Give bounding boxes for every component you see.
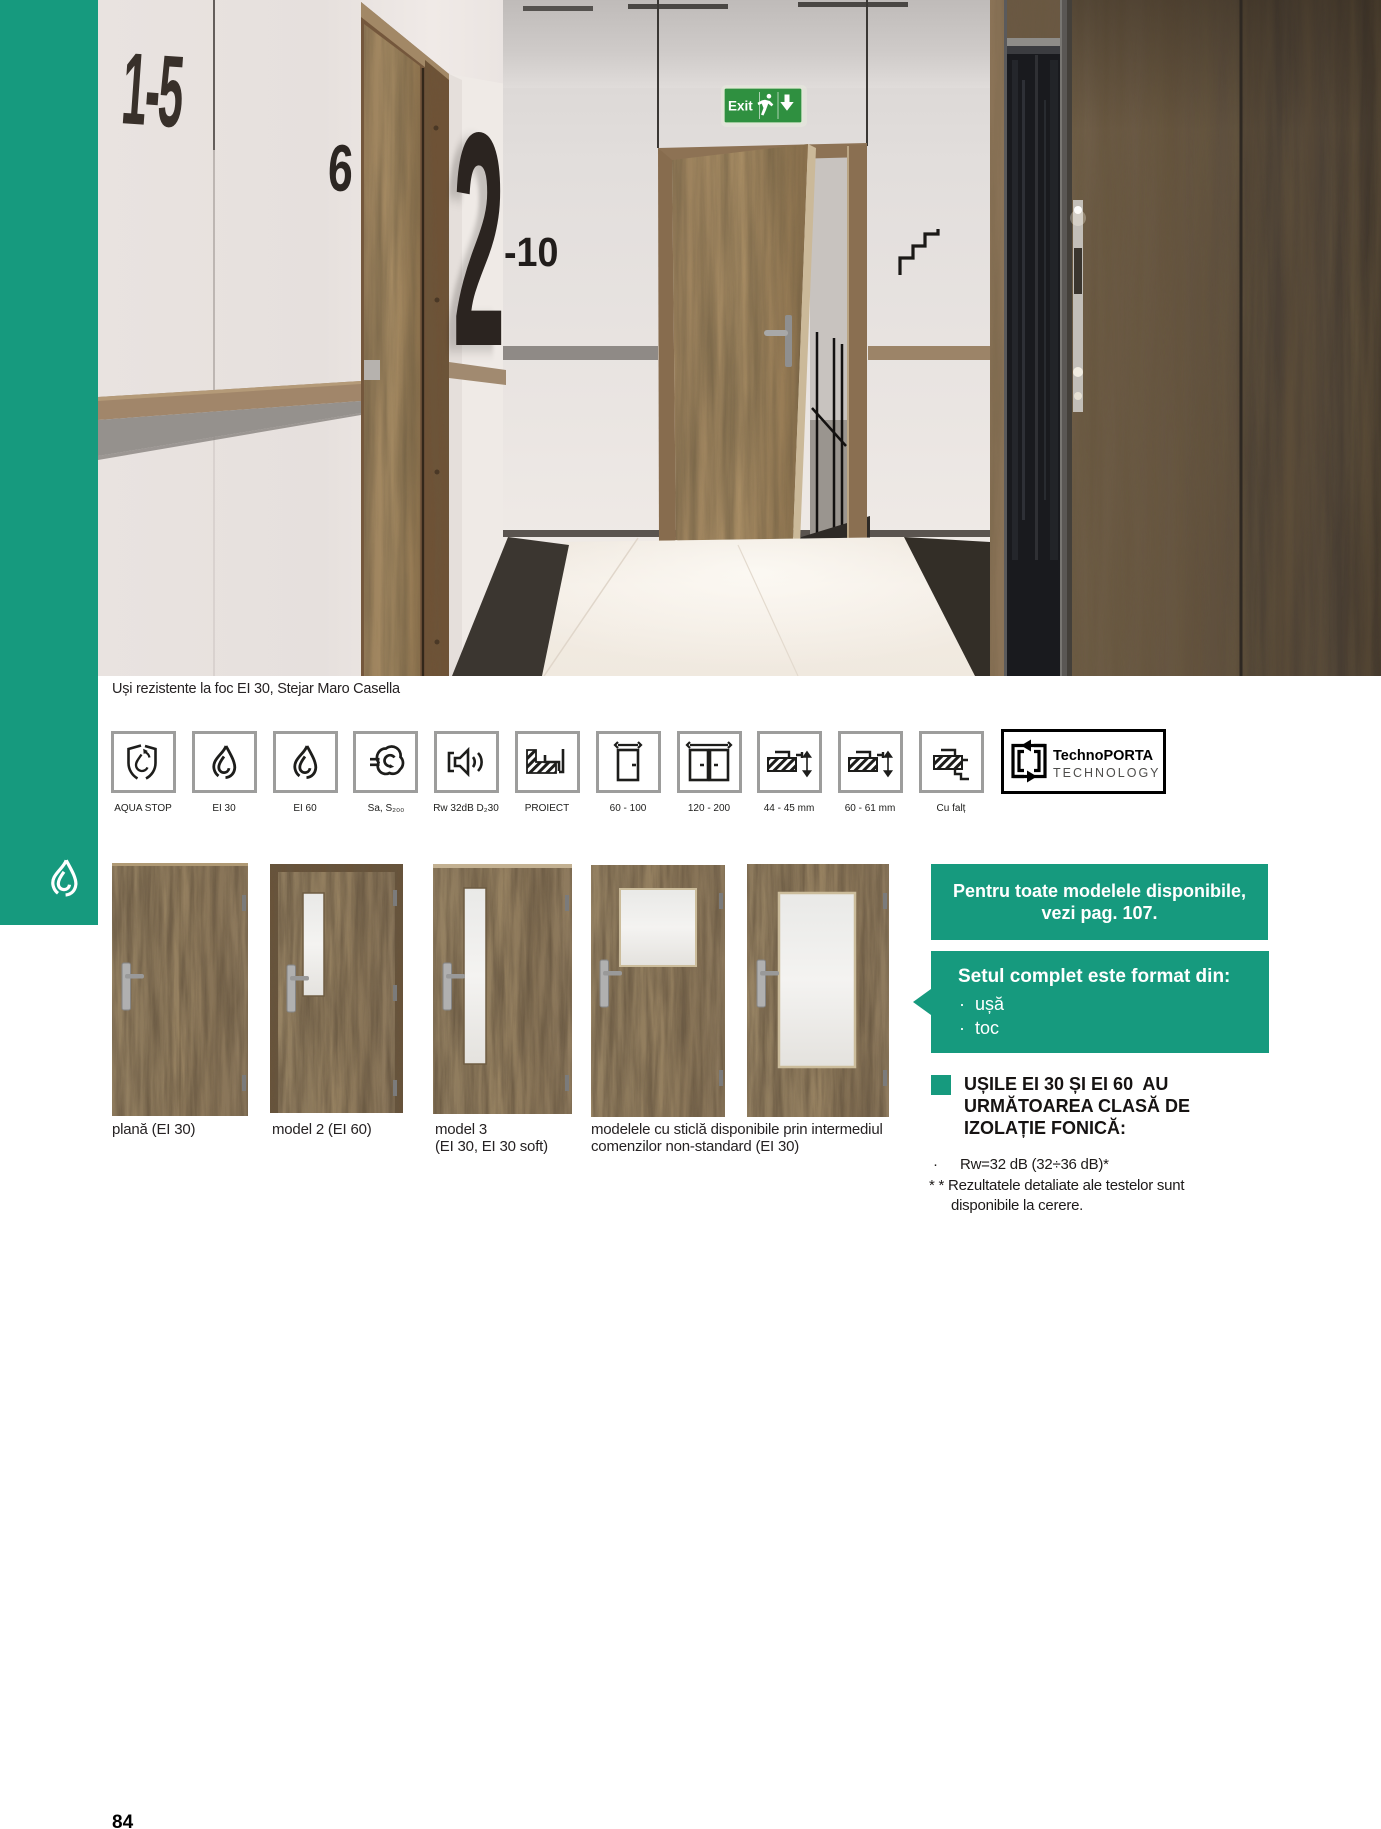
svg-text:PROIECT: PROIECT xyxy=(525,803,569,814)
svg-text:6: 6 xyxy=(326,130,355,205)
svg-text:EI 30: EI 30 xyxy=(212,803,236,814)
svg-text:1-5: 1-5 xyxy=(118,31,186,149)
svg-text:EI 60: EI 60 xyxy=(293,803,317,814)
svg-text:2: 2 xyxy=(453,69,505,410)
svg-text:-10: -10 xyxy=(504,230,559,276)
svg-text:60 - 61 mm: 60 - 61 mm xyxy=(845,803,896,814)
svg-text:120 - 200: 120 - 200 xyxy=(688,803,731,814)
svg-text:TECHNOLOGY: TECHNOLOGY xyxy=(1053,766,1161,780)
svg-text:TechnoPORTA: TechnoPORTA xyxy=(1053,748,1154,764)
svg-text:Sa, S₂₀₀: Sa, S₂₀₀ xyxy=(368,803,405,814)
svg-text:Cu falț: Cu falț xyxy=(937,803,966,814)
svg-text:Rw 32dB D₂30: Rw 32dB D₂30 xyxy=(433,803,499,814)
svg-text:Exit: Exit xyxy=(728,99,753,114)
svg-text:60 - 100: 60 - 100 xyxy=(610,803,647,814)
svg-text:AQUA STOP: AQUA STOP xyxy=(114,803,172,814)
svg-text:44 - 45 mm: 44 - 45 mm xyxy=(764,803,815,814)
